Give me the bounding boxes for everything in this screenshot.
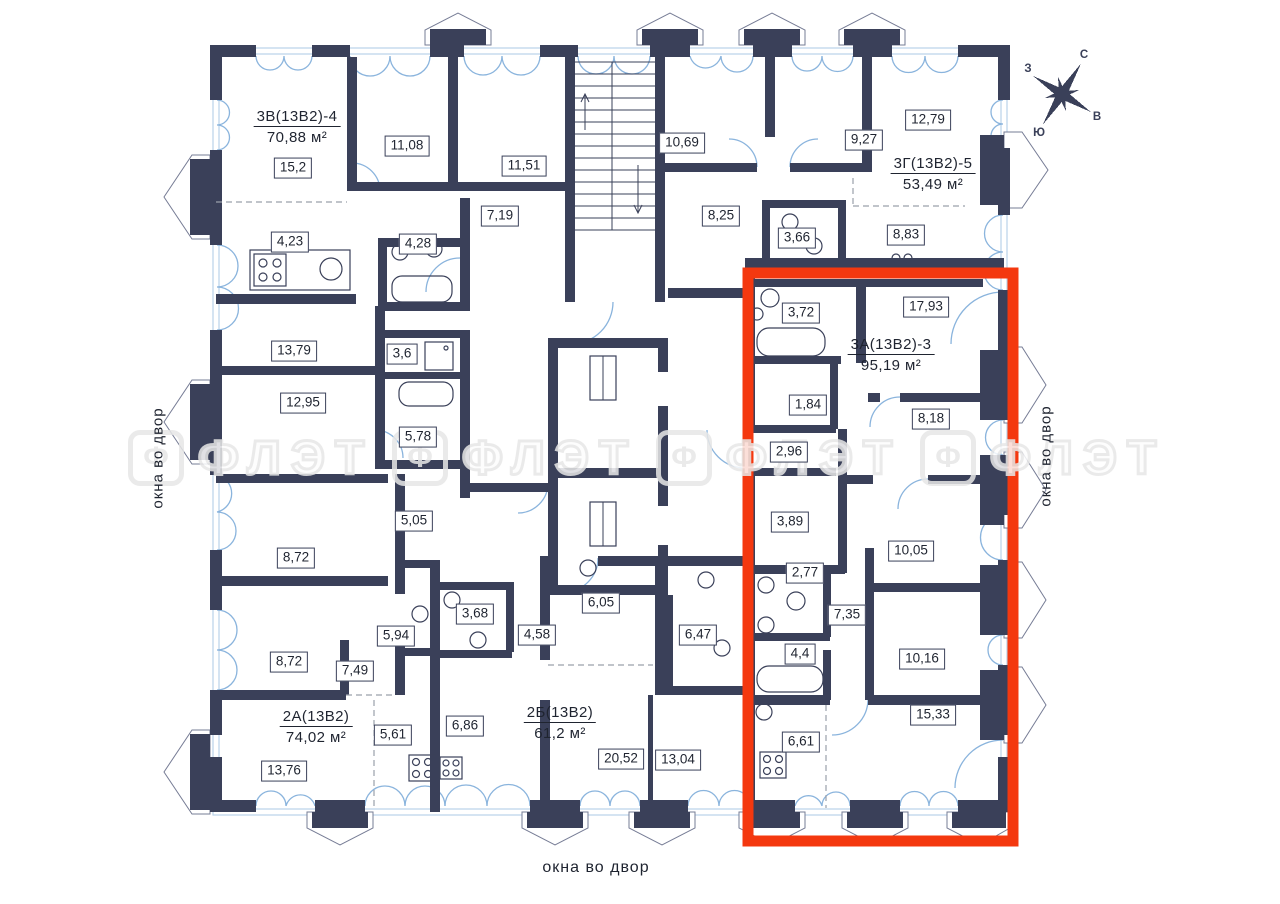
apartment-number: 3В(13В2)-4 [254, 108, 341, 127]
apartment-number: 2Б(13В2) [524, 704, 596, 723]
stove-icon [760, 752, 786, 778]
room-area-label: 13,76 [261, 761, 307, 782]
room-area-label: 5,05 [395, 511, 433, 532]
room-area-label: 10,05 [888, 541, 934, 562]
room-area-label: 6,86 [446, 716, 484, 737]
watermark-brand-icon: Ф [656, 430, 712, 486]
room-area-label: 7,49 [336, 661, 374, 682]
room-area-label: 13,79 [271, 341, 317, 362]
room-area-label: 4,58 [518, 625, 556, 646]
room-area-label: 6,47 [679, 625, 717, 646]
room-area-label: 8,18 [912, 409, 950, 430]
room-area-label: 5,78 [399, 427, 437, 448]
left-facade-label: окна во двор [150, 407, 167, 508]
apartment-label: 3В(13В2)-470,88 м² [254, 108, 341, 146]
room-area-label: 11,51 [502, 156, 547, 177]
apartment-area: 74,02 м² [280, 729, 353, 746]
room-area-label: 6,05 [582, 593, 620, 614]
room-area-label: 11,08 [385, 136, 430, 157]
room-area-label: 5,94 [377, 626, 415, 647]
room-area-label: 6,61 [782, 732, 820, 753]
apartment-label: 2А(13В2)74,02 м² [280, 708, 353, 746]
room-area-label: 13,04 [655, 750, 701, 771]
compass-west-label: З [1024, 63, 1031, 75]
room-area-label: 12,79 [905, 110, 951, 131]
room-area-label: 20,52 [598, 749, 644, 770]
room-area-label: 4,23 [271, 232, 309, 253]
stove-icon [440, 757, 462, 779]
room-area-label: 3,66 [778, 228, 816, 249]
room-area-label: 3,6 [387, 344, 418, 365]
room-area-label: 15,33 [910, 705, 956, 726]
room-area-label: 8,72 [277, 548, 315, 569]
right-facade-label: окна во двор [1038, 405, 1055, 506]
floor-plan-page: ФФЛЭТФФЛЭТФФЛЭТФФЛЭТ [0, 0, 1280, 904]
apartment-area: 95,19 м² [848, 357, 935, 374]
room-area-label: 7,19 [481, 206, 519, 227]
room-area-label: 5,61 [374, 725, 412, 746]
watermark-brand-text: ФЛЭТ [462, 431, 638, 486]
room-area-label: 9,27 [845, 130, 883, 151]
compass-south-label: Ю [1033, 127, 1045, 139]
room-area-label: 2,96 [770, 442, 808, 463]
room-area-label: 4,4 [785, 644, 816, 665]
watermark-brand-text: ФЛЭТ [726, 431, 902, 486]
room-area-label: 4,28 [399, 234, 437, 255]
room-area-label: 12,95 [280, 393, 326, 414]
apartment-number: 2А(13В2) [280, 708, 353, 727]
interior-walls [216, 45, 1004, 812]
room-area-label: 3,72 [782, 303, 820, 324]
watermark-brand-text: ФЛЭТ [990, 431, 1166, 486]
room-area-label: 3,68 [456, 604, 494, 625]
room-area-label: 10,16 [899, 649, 945, 670]
room-area-label: 8,25 [702, 206, 740, 227]
apartment-label: 3Г(13В2)-553,49 м² [891, 155, 976, 193]
apartment-number: 3А(13В2)-3 [848, 336, 935, 355]
room-area-label: 15,2 [274, 158, 312, 179]
compass-north-label: С [1080, 49, 1088, 61]
apartment-area: 61,2 м² [524, 725, 596, 742]
room-area-label: 17,93 [903, 297, 949, 318]
apartment-area: 70,88 м² [254, 129, 341, 146]
staircase [575, 62, 655, 230]
apartment-number: 3Г(13В2)-5 [891, 155, 976, 174]
compass-east-label: В [1093, 111, 1101, 123]
apartment-area: 53,49 м² [891, 176, 976, 193]
watermark-brand-icon: Ф [920, 430, 976, 486]
room-area-label: 1,84 [789, 395, 827, 416]
room-area-label: 7,35 [828, 605, 866, 626]
room-area-label: 2,77 [786, 563, 824, 584]
room-area-label: 8,83 [887, 225, 925, 246]
stove-icon [254, 254, 286, 286]
room-area-label: 8,72 [270, 652, 308, 673]
compass-rose-icon [1033, 64, 1091, 125]
apartment-label[interactable]: 3А(13В2)-395,19 м² [848, 336, 935, 374]
room-area-label: 3,89 [771, 512, 809, 533]
watermark-brand-text: ФЛЭТ [198, 431, 374, 486]
bottom-facade-label: окна во двор [542, 859, 649, 877]
apartment-label: 2Б(13В2)61,2 м² [524, 704, 596, 742]
room-area-label: 10,69 [659, 133, 705, 154]
